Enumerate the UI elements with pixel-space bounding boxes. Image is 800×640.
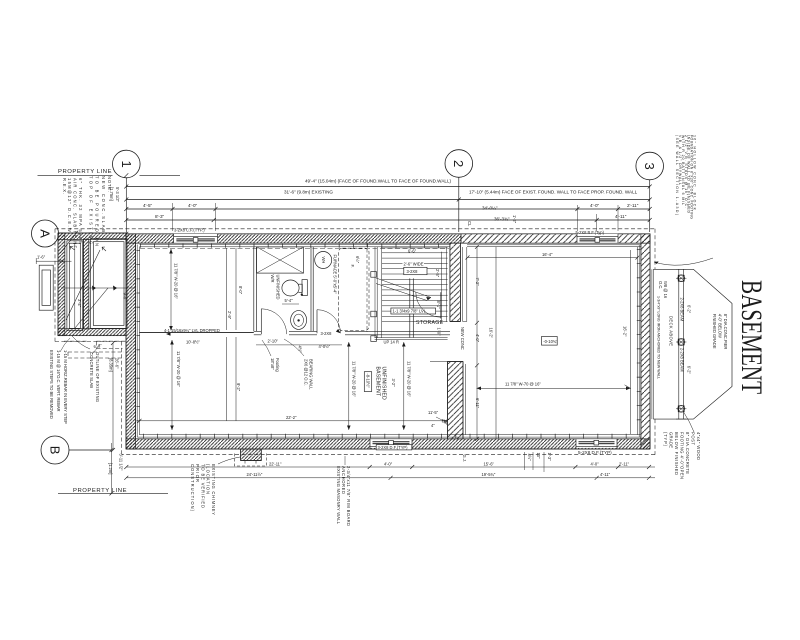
svg-text:G.J.: G.J.	[462, 455, 467, 463]
svg-text:DECK ABOVE: DECK ABOVE	[669, 316, 674, 346]
svg-text:11 7/8" W-20 @ 16": 11 7/8" W-20 @ 16"	[173, 263, 178, 299]
svg-text:34'-0¼": 34'-0¼"	[482, 206, 498, 211]
svg-text:(LOCATION: (LOCATION	[206, 464, 211, 494]
svg-text:11'-5": 11'-5"	[428, 410, 439, 415]
svg-text:PROPERTY LINE: PROPERTY LINE	[58, 169, 112, 175]
svg-text:36'-3¾": 36'-3¾"	[494, 217, 510, 222]
svg-text:8" DIA.CONCRETE: 8" DIA.CONCRETE	[685, 432, 690, 474]
svg-text:11 7/8" W-70 @ 16": 11 7/8" W-70 @ 16"	[505, 381, 541, 386]
svg-text:2'-5": 2'-5"	[435, 269, 440, 278]
svg-text:2'-10": 2'-10"	[268, 339, 279, 344]
svg-text:EXISTING STEPS TO BE REMOVED: EXISTING STEPS TO BE REMOVED	[49, 350, 54, 419]
svg-text:10": 10"	[536, 453, 541, 460]
svg-text:4'-0": 4'-0"	[384, 461, 393, 466]
svg-text:2'-11": 2'-11"	[619, 461, 630, 466]
svg-text:11 7/8" W-20 @ 16": 11 7/8" W-20 @ 16"	[176, 351, 181, 387]
svg-text:EXISTING MASONRY WALL: EXISTING MASONRY WALL	[336, 466, 341, 525]
svg-text:R.E.X.: R.E.X.	[62, 178, 67, 194]
svg-text:7'-2": 7'-2"	[475, 278, 480, 287]
svg-text:6½": 6½"	[355, 256, 360, 264]
svg-text:1-3/4"x9" LONG IRON ANCHORED T: 1-3/4"x9" LONG IRON ANCHORED TO NEW WALL	[657, 296, 661, 379]
svg-text:NEW CONC: NEW CONC	[460, 327, 465, 350]
svg-text:FINISHED GRADE: FINISHED GRADE	[712, 314, 717, 349]
svg-text:[1.2m]: [1.2m]	[108, 463, 113, 474]
svg-text:BELOW FINISHED: BELOW FINISHED	[674, 432, 679, 475]
svg-text:18"x8": 18"x8"	[270, 358, 275, 370]
svg-text:5-2X8 D.F.(TYP): 5-2X8 D.F.(TYP)	[578, 450, 612, 455]
svg-text:FURNACE 5'-0"x5'-4": FURNACE 5'-0"x5'-4"	[333, 255, 338, 295]
svg-text:6'-6": 6'-6"	[408, 249, 417, 254]
svg-text:6'-2": 6'-2"	[687, 366, 692, 375]
svg-text:4": 4"	[431, 423, 435, 428]
svg-text:-8-10½": -8-10½"	[366, 374, 371, 389]
svg-text:5'-3 1/2": 5'-3 1/2"	[115, 187, 120, 203]
svg-text:WH: WH	[321, 257, 326, 264]
svg-text:1-15 M HORIZ.REBAR IN EVERY ST: 1-15 M HORIZ.REBAR IN EVERY STEP	[63, 350, 68, 424]
svg-text:1'-6": 1'-6"	[37, 255, 46, 260]
svg-text:16'-2": 16'-2"	[489, 328, 494, 339]
svg-text:9'-0": 9'-0"	[123, 293, 128, 302]
svg-text:8" DIA.CONC.PIER: 8" DIA.CONC.PIER	[723, 314, 728, 350]
svg-text:1: 1	[119, 161, 134, 168]
svg-text:6'-11": 6'-11"	[475, 398, 480, 409]
svg-text:3-2X8: 3-2X8	[321, 331, 333, 336]
svg-text:PROPERTY LINE: PROPERTY LINE	[73, 488, 127, 494]
svg-text:15'-6": 15'-6"	[484, 461, 495, 466]
svg-text:1-15 M @ 16"O.C. VERT. REBAR: 1-15 M @ 16"O.C. VERT. REBAR	[56, 350, 61, 412]
svg-text:17'-10" (5.44m) FACE OF EXIST.: 17'-10" (5.44m) FACE OF EXIST. FOUND. WA…	[469, 190, 638, 195]
svg-text:4'-0": 4'-0"	[188, 203, 198, 208]
svg-text:4½": 4½"	[298, 346, 303, 354]
svg-text:8'-0": 8'-0"	[238, 286, 243, 295]
svg-text:BASEMENT: BASEMENT	[735, 280, 768, 394]
svg-text:B: B	[47, 446, 62, 455]
svg-text:4'-0": 4'-0"	[475, 334, 480, 343]
svg-text:PRIOR: PRIOR	[195, 464, 200, 482]
svg-text:3'-11 1/2": 3'-11 1/2"	[119, 454, 124, 471]
svg-text:-0-10¾": -0-10¾"	[543, 339, 558, 344]
svg-text:4'-0" BELOW: 4'-0" BELOW	[718, 314, 723, 338]
svg-text:2-2X8 BEAM: 2-2X8 BEAM	[680, 348, 685, 372]
svg-text:F.: F.	[350, 265, 355, 268]
svg-text:3-2X8 D.F.(TYP): 3-2X8 D.F.(TYP)	[378, 445, 409, 450]
svg-text:24'-11½": 24'-11½"	[247, 472, 263, 477]
svg-text:9'-2": 9'-2"	[236, 383, 241, 392]
svg-text:2-2X8 BEAM: 2-2X8 BEAM	[680, 298, 685, 322]
svg-text:2: 2	[451, 160, 466, 167]
svg-text:1'-2": 1'-2"	[512, 215, 517, 224]
svg-text:11 7/8" W-20 @ 16": 11 7/8" W-20 @ 16"	[352, 361, 357, 397]
svg-text:4'-11": 4'-11"	[600, 472, 611, 477]
svg-text:BASEMENT: BASEMENT	[375, 367, 381, 397]
svg-text:4'-0½": 4'-0½"	[319, 344, 331, 349]
svg-text:16'-2": 16'-2"	[623, 326, 628, 337]
svg-text:NEW CONC.SLAB: NEW CONC.SLAB	[101, 176, 106, 232]
svg-text:OUTLINE OF EXISTING: OUTLINE OF EXISTING	[95, 352, 100, 402]
svg-text:GRADE: GRADE	[669, 432, 674, 448]
svg-text:EXISTING CHIMNEY: EXISTING CHIMNEY	[211, 464, 216, 515]
svg-text:31'-6" (9.8m) EXISTING: 31'-6" (9.8m) EXISTING	[284, 189, 333, 194]
svg-text:CONSTRUCTION): CONSTRUCTION)	[190, 464, 195, 512]
svg-text:3'-4": 3'-4"	[77, 299, 82, 308]
svg-text:16'-4": 16'-4"	[542, 252, 553, 257]
svg-text:4'-0": 4'-0"	[591, 461, 600, 466]
svg-text:3-2X8: 3-2X8	[407, 269, 419, 274]
svg-text:4'-5": 4'-5"	[143, 203, 153, 208]
svg-text:3-2X8 C.F.(TYP.): 3-2X8 C.F.(TYP.)	[174, 228, 205, 233]
svg-text:11 7/8" W-20 @ 16": 11 7/8" W-20 @ 16"	[407, 361, 412, 397]
svg-text:5-2X8 B.F.(Typ): 5-2X8 B.F.(Typ)	[576, 230, 605, 235]
svg-text:UNFINISHED: UNFINISHED	[276, 275, 281, 300]
svg-text:8'-1": 8'-1"	[436, 301, 441, 310]
svg-text:4'-0": 4'-0"	[590, 203, 600, 208]
svg-text:19'-5¾": 19'-5¾"	[482, 472, 496, 477]
svg-text:1-1 3/4x9 7/8" LVL: 1-1 3/4x9 7/8" LVL	[393, 309, 427, 314]
svg-text:CONCRETE SLAB: CONCRETE SLAB	[89, 352, 94, 388]
svg-text:3: 3	[642, 163, 657, 170]
svg-text:4-1 15/16x9¼" LVL DROPPED: 4-1 15/16x9¼" LVL DROPPED	[164, 328, 220, 333]
svg-text:W/R: W/R	[270, 275, 275, 283]
svg-text:STORAGE: STORAGE	[416, 320, 444, 326]
svg-text:2X6 @12 O.C.: 2X6 @12 O.C.	[303, 359, 308, 386]
svg-text:A: A	[37, 229, 52, 238]
svg-text:22'-2": 22'-2"	[286, 415, 297, 420]
svg-text:O.C.: O.C.	[658, 281, 663, 289]
svg-text:2'-9": 2'-9"	[227, 311, 232, 320]
svg-text:5'-4": 5'-4"	[285, 298, 294, 303]
svg-text:26'-6": 26'-6"	[115, 358, 120, 369]
svg-text:22'-11": 22'-11"	[269, 461, 282, 466]
svg-text:CL: CL	[467, 221, 472, 227]
svg-text:8'-3": 8'-3"	[155, 214, 165, 219]
svg-text:4"x4" WOOD: 4"x4" WOOD	[696, 432, 701, 460]
svg-text:15M@12" O.C.E.W.: 15M@12" O.C.E.W.	[67, 178, 72, 234]
svg-text:4½": 4½"	[527, 454, 532, 462]
svg-text:[1.75m]: [1.75m]	[109, 187, 114, 201]
svg-text:10": 10"	[443, 419, 448, 426]
svg-text:TO BE VERIFIED: TO BE VERIFIED	[200, 464, 205, 508]
svg-text:(TYP): (TYP)	[663, 432, 668, 447]
svg-text:3'-2": 3'-2"	[391, 379, 396, 388]
svg-text:10'-8½": 10'-8½"	[186, 340, 200, 345]
svg-text:POST: POST	[691, 432, 696, 445]
svg-text:FOOTING 4'-0"OPEN: FOOTING 4'-0"OPEN	[680, 432, 685, 479]
svg-text:49'-4" (15.04m) (FACE OF FOUND: 49'-4" (15.04m) (FACE OF FOUND.WALL TO F…	[305, 179, 452, 184]
svg-text:UP 14 R: UP 14 R	[384, 340, 399, 345]
svg-text:2'-11": 2'-11"	[627, 203, 639, 208]
svg-text:1'-3": 1'-3"	[547, 453, 552, 462]
svg-text:6'-2": 6'-2"	[687, 305, 692, 314]
svg-text:1'-0": 1'-0"	[437, 328, 442, 337]
svg-text:4'-11": 4'-11"	[615, 214, 627, 219]
svg-text:[8.35m]: [8.35m]	[109, 358, 114, 372]
svg-text:6'-3": 6'-3"	[93, 343, 102, 349]
svg-text:2'-6" WIDE: 2'-6" WIDE	[404, 262, 424, 267]
